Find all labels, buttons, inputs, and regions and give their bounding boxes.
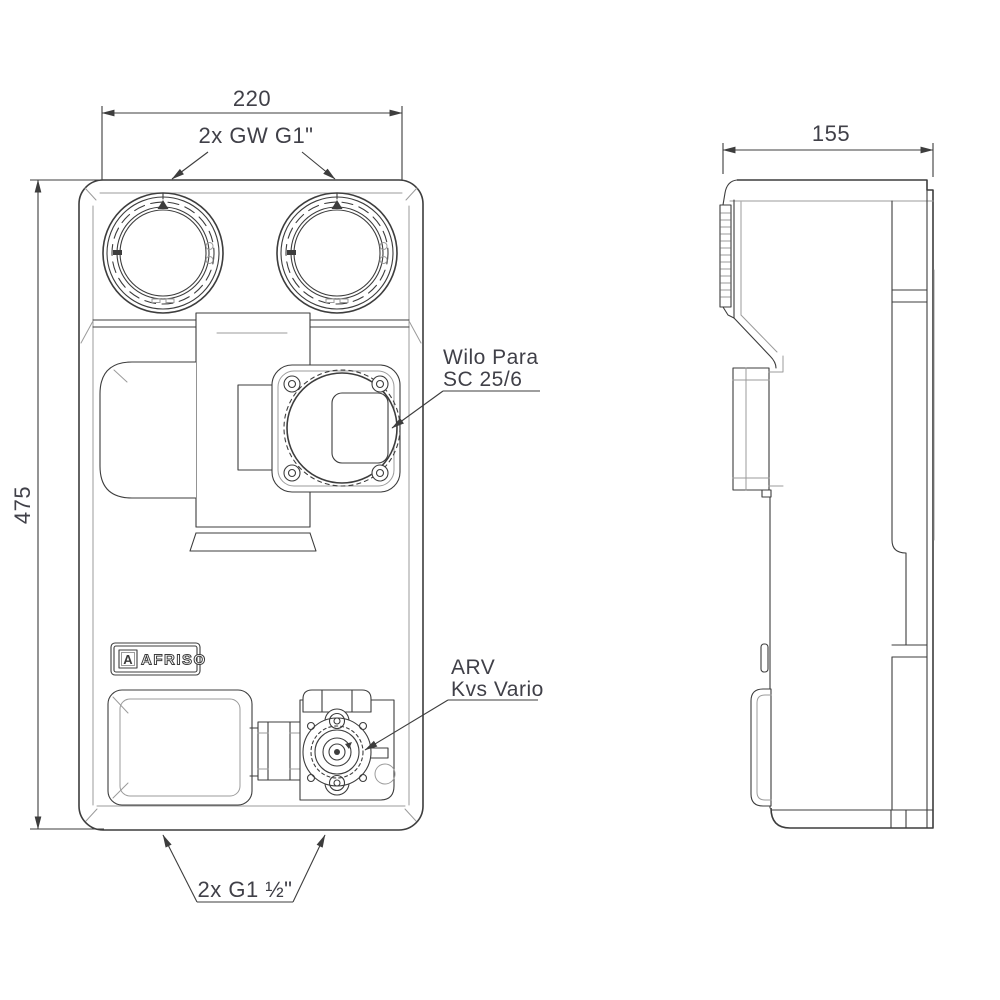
side-view <box>720 180 934 828</box>
side-pump-block <box>733 356 783 497</box>
label-valve-line2: Kvs Vario <box>451 678 544 701</box>
pump-wilo <box>272 365 400 492</box>
pump-face <box>332 393 388 463</box>
dimension-depth-155: 155 <box>723 121 933 177</box>
label-valve-line1: ARV <box>451 656 495 679</box>
union-nut <box>258 722 302 780</box>
insulation-pod-left <box>100 362 196 498</box>
ball-valve-cap-left <box>103 193 223 313</box>
side-chamfer <box>734 318 776 368</box>
insulation-box <box>108 690 252 805</box>
afriso-icon-letter: A <box>123 652 133 667</box>
dim-height-text: 475 <box>10 486 35 524</box>
label-top-ports-text: 2x GW G1" <box>199 123 314 148</box>
label-bottom-ports-text: 2x G1 ½" <box>198 877 293 902</box>
label-top-ports: 2x GW G1" <box>172 123 335 179</box>
label-pump-line1: Wilo Para <box>443 346 539 369</box>
side-valve-cap <box>720 205 734 318</box>
label-pump: Wilo Para SC 25/6 <box>392 346 540 428</box>
front-view: A AFRISO <box>79 180 423 830</box>
label-pump-line2: SC 25/6 <box>443 368 522 391</box>
label-bottom-ports: 2x G1 ½" <box>163 835 325 902</box>
side-bottom-lines <box>771 810 933 828</box>
afriso-logo-text: AFRISO <box>141 652 207 669</box>
side-clip <box>761 644 768 672</box>
technical-drawing-canvas: A AFRISO <box>0 0 1000 1000</box>
drawing-svg: A AFRISO <box>0 0 1000 1000</box>
lower-assembly <box>108 690 395 805</box>
side-arv-knob <box>751 689 771 806</box>
side-back-panel <box>892 201 927 810</box>
afriso-logo: A AFRISO <box>111 643 207 675</box>
dimension-height-475: 475 <box>10 180 104 829</box>
dim-depth-text: 155 <box>812 121 850 146</box>
dim-width-text: 220 <box>233 86 271 111</box>
ball-valve-cap-right <box>277 193 397 313</box>
